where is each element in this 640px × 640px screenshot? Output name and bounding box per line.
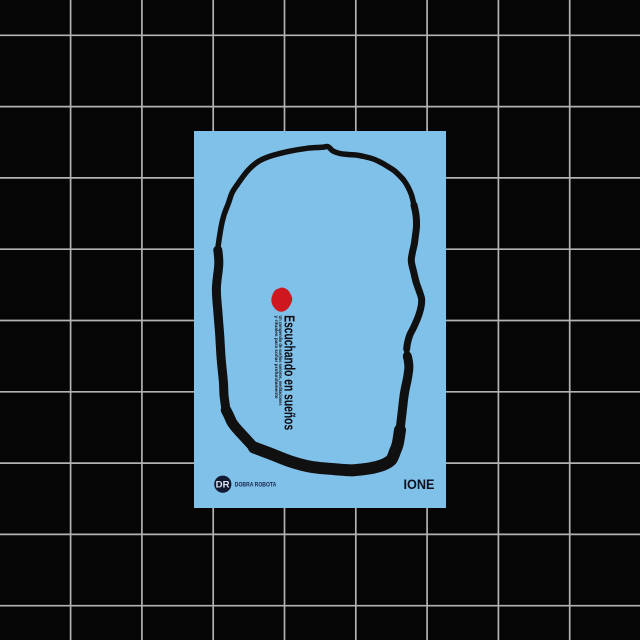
- svg-text:DOBRA ROBOTA: DOBRA ROBOTA: [235, 481, 277, 488]
- svg-text:IONE: IONE: [404, 477, 435, 492]
- svg-text:y rituales para soñar profunda: y rituales para soñar profundamente: [274, 316, 279, 399]
- svg-text:DR: DR: [216, 479, 230, 490]
